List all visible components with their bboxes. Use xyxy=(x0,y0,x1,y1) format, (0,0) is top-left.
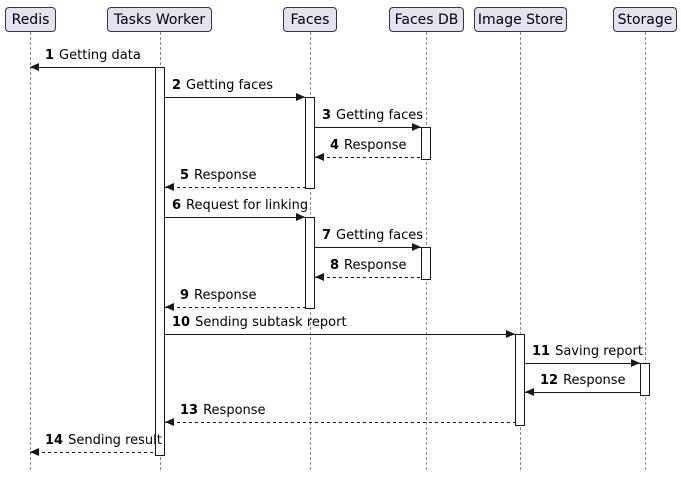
arrowhead-right-icon xyxy=(296,93,305,101)
arrowhead-right-icon xyxy=(412,123,421,131)
arrowhead-left-icon xyxy=(165,303,174,311)
message-label-10: 10Sending subtask report xyxy=(172,315,347,331)
activation-tasks-worker xyxy=(155,67,165,456)
message-text: Sending subtask report xyxy=(195,315,346,330)
arrowhead-left-icon xyxy=(315,153,324,161)
message-number: 13 xyxy=(180,403,198,418)
message-label-7: 7Getting faces xyxy=(322,228,423,244)
participant-tasks-worker: Tasks Worker xyxy=(107,7,212,32)
arrowhead-right-icon xyxy=(296,213,305,221)
message-line-5 xyxy=(165,187,305,188)
message-line-1 xyxy=(30,67,155,68)
message-line-10 xyxy=(165,334,515,335)
message-text: Getting faces xyxy=(336,228,423,243)
message-number: 4 xyxy=(330,138,339,153)
arrowhead-left-icon xyxy=(30,448,39,456)
message-line-11 xyxy=(525,363,640,364)
participant-storage: Storage xyxy=(613,7,677,32)
message-number: 5 xyxy=(180,168,189,183)
arrowhead-left-icon xyxy=(165,418,174,426)
message-text: Getting faces xyxy=(186,78,273,93)
arrowhead-left-icon xyxy=(525,388,534,396)
message-text: Response xyxy=(194,288,256,303)
message-label-6: 6Request for linking xyxy=(172,198,308,214)
activation-faces-db xyxy=(421,127,431,160)
participant-label: Storage xyxy=(618,12,673,28)
message-line-8 xyxy=(315,277,421,278)
activation-faces-db xyxy=(421,247,431,280)
message-label-13: 13Response xyxy=(180,403,266,419)
message-label-1: 1Getting data xyxy=(45,48,141,64)
arrowhead-right-icon xyxy=(412,243,421,251)
message-number: 10 xyxy=(172,315,190,330)
message-label-9: 9Response xyxy=(180,288,256,304)
message-line-6 xyxy=(165,217,305,218)
message-number: 8 xyxy=(330,258,339,273)
activation-faces xyxy=(305,217,315,309)
message-number: 9 xyxy=(180,288,189,303)
message-number: 7 xyxy=(322,228,331,243)
message-number: 2 xyxy=(172,78,181,93)
participant-label: Image Store xyxy=(478,12,563,28)
message-label-14: 14Sending result xyxy=(45,433,162,449)
message-number: 12 xyxy=(540,373,558,388)
message-line-2 xyxy=(165,97,305,98)
message-text: Response xyxy=(344,138,406,153)
message-line-3 xyxy=(315,127,421,128)
message-label-5: 5Response xyxy=(180,168,256,184)
lifeline-redis xyxy=(30,32,31,470)
lifeline-storage xyxy=(645,32,646,470)
participant-label: Redis xyxy=(12,12,50,28)
message-label-3: 3Getting faces xyxy=(322,108,423,124)
message-line-7 xyxy=(315,247,421,248)
message-text: Response xyxy=(194,168,256,183)
message-text: Getting faces xyxy=(336,108,423,123)
message-label-12: 12Response xyxy=(540,373,626,389)
message-line-13 xyxy=(165,422,515,423)
arrowhead-right-icon xyxy=(631,359,640,367)
message-line-14 xyxy=(30,452,155,453)
message-text: Saving report xyxy=(555,344,643,359)
activation-faces xyxy=(305,97,315,189)
message-text: Request for linking xyxy=(186,198,308,213)
message-line-9 xyxy=(165,307,305,308)
message-line-12 xyxy=(525,392,640,393)
participant-label: Faces xyxy=(291,12,330,28)
message-text: Response xyxy=(203,403,265,418)
participant-image-store: Image Store xyxy=(474,7,567,32)
message-number: 6 xyxy=(172,198,181,213)
message-number: 1 xyxy=(45,48,54,63)
sequence-diagram: 1Getting data2Getting faces3Getting face… xyxy=(0,0,681,477)
participant-faces: Faces xyxy=(283,7,337,32)
message-label-2: 2Getting faces xyxy=(172,78,273,94)
message-number: 3 xyxy=(322,108,331,123)
arrowhead-right-icon xyxy=(506,330,515,338)
participant-label: Faces DB xyxy=(395,12,459,28)
message-text: Getting data xyxy=(59,48,141,63)
message-text: Response xyxy=(344,258,406,273)
message-number: 11 xyxy=(532,344,550,359)
participant-redis: Redis xyxy=(5,7,56,32)
activation-storage xyxy=(640,363,650,396)
arrowhead-left-icon xyxy=(30,63,39,71)
message-label-8: 8Response xyxy=(330,258,406,274)
message-label-11: 11Saving report xyxy=(532,344,643,360)
message-label-4: 4Response xyxy=(330,138,406,154)
message-text: Sending result xyxy=(68,433,162,448)
arrowhead-left-icon xyxy=(165,183,174,191)
activation-image-store xyxy=(515,334,525,426)
message-line-4 xyxy=(315,157,421,158)
message-text: Response xyxy=(563,373,625,388)
arrowhead-left-icon xyxy=(315,273,324,281)
message-number: 14 xyxy=(45,433,63,448)
participant-label: Tasks Worker xyxy=(114,12,205,28)
participant-faces-db: Faces DB xyxy=(389,7,464,32)
